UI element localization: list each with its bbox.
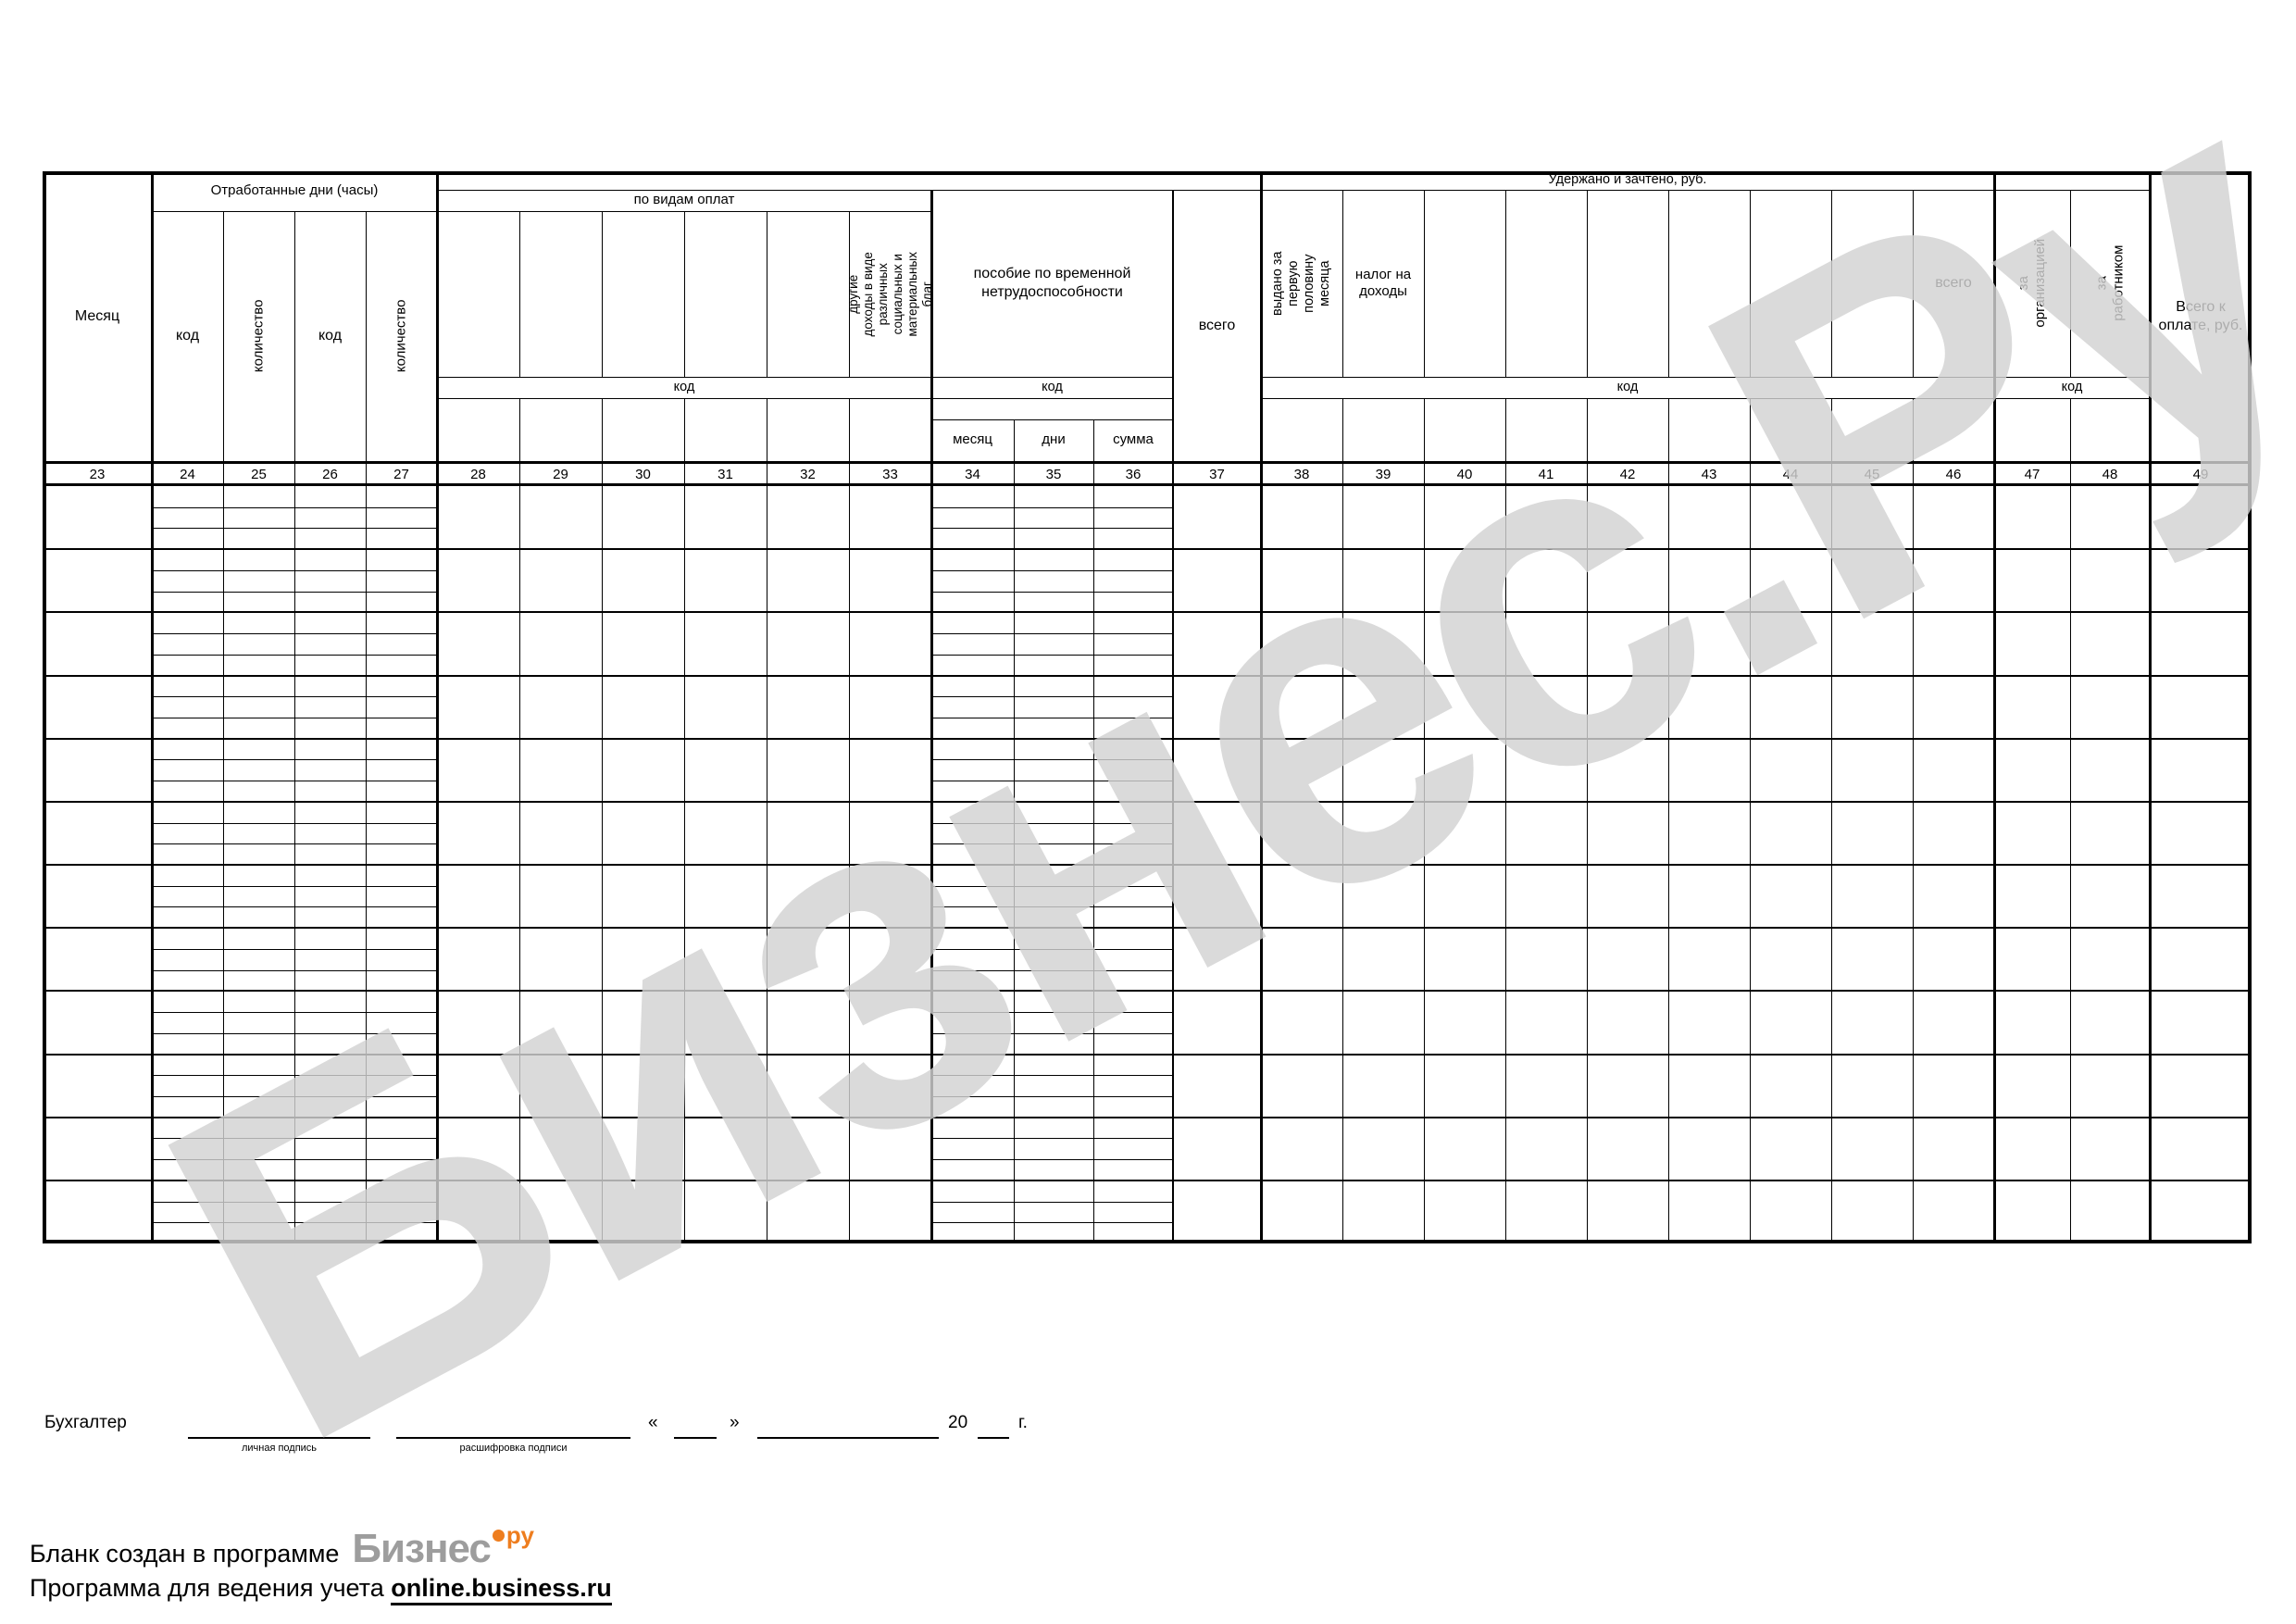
- grid-line: [43, 171, 2252, 175]
- grid-line: [519, 211, 520, 377]
- personal-signature-caption: личная подпись: [188, 1443, 370, 1454]
- grid-line: [152, 781, 437, 781]
- grid-line: [1093, 419, 1094, 1243]
- grid-line: [684, 211, 685, 377]
- header-payment-blank: [684, 211, 767, 377]
- header-sick-days: дни: [1014, 419, 1093, 461]
- grid-line: [152, 718, 437, 718]
- grid-line: [152, 970, 437, 971]
- header-withheld-blank: [1831, 190, 1913, 377]
- grid-line: [437, 377, 1173, 378]
- grid-line: [1831, 190, 1832, 377]
- grid-line: [152, 759, 437, 760]
- grid-line: [931, 655, 1173, 656]
- grid-line: [152, 886, 437, 887]
- grid-line: [43, 801, 2252, 803]
- grid-line: [43, 675, 2252, 677]
- footer-created-row: Бланк создан в программе Бизнес ру: [30, 1530, 534, 1568]
- header-code-withheld: код: [1261, 377, 1994, 398]
- grid-line: [931, 781, 1173, 781]
- grid-line: [1587, 190, 1588, 377]
- grid-line: [152, 823, 437, 824]
- grid-line: [43, 738, 2252, 740]
- grid-line: [1261, 398, 2150, 399]
- header-sick-benefit: пособие по временной нетрудоспособности: [931, 190, 1173, 377]
- grid-line: [931, 419, 1173, 420]
- grid-line: [1260, 171, 1263, 1243]
- grid-line: [223, 211, 224, 1243]
- logo-ru-text: ру: [506, 1521, 534, 1550]
- grid-line: [152, 696, 437, 697]
- header-by-payment-types: по видам оплат: [437, 190, 931, 211]
- grid-line: [152, 528, 437, 529]
- header-sick-blank: [931, 398, 1173, 419]
- grid-line: [931, 696, 1173, 697]
- grid-line: [43, 1180, 2252, 1181]
- header-code-hours: код: [294, 211, 366, 461]
- year-suffix: г.: [1018, 1413, 1028, 1433]
- grid-line: [931, 886, 1173, 887]
- grid-line: [849, 211, 850, 377]
- header-total-to-pay: Всего к оплате, руб.: [2150, 171, 2252, 461]
- grid-line: [931, 823, 1173, 824]
- grid-line: [152, 507, 437, 508]
- grid-line: [931, 1012, 1173, 1013]
- grid-line: [43, 864, 2252, 866]
- footer-created-text: Бланк создан в программе: [30, 1541, 339, 1568]
- grid-line: [152, 211, 931, 212]
- grid-line: [931, 1138, 1173, 1139]
- header-debt-emp: за работником: [2070, 190, 2150, 377]
- footer-program-row: Программа для ведения учета online.busin…: [30, 1574, 612, 1603]
- grid-line: [931, 970, 1173, 971]
- header-withheld-blank: [1424, 190, 1505, 377]
- grid-line: [1342, 190, 1343, 377]
- header-debt-org: за организацией: [1994, 190, 2070, 377]
- header-withheld-blank: [1668, 190, 1750, 377]
- grid-line: [43, 1054, 2252, 1056]
- header-income-tax: налог на доходы: [1342, 190, 1424, 377]
- year-prefix: 20: [948, 1413, 967, 1433]
- signature-name-line[interactable]: [396, 1437, 630, 1439]
- header-code-days: код: [152, 211, 223, 461]
- grid-line: [152, 1012, 437, 1013]
- grid-line: [931, 570, 1173, 571]
- payroll-table: МесяцОтработанные дни (часы)кодколичеств…: [43, 171, 2252, 1243]
- business-ru-link[interactable]: online.business.ru: [391, 1574, 612, 1605]
- grid-line: [931, 949, 1173, 950]
- grid-line: [1014, 419, 1015, 1243]
- grid-line: [152, 1033, 437, 1034]
- grid-line: [1750, 190, 1751, 377]
- grid-line: [931, 1222, 1173, 1223]
- grid-line: [2070, 190, 2071, 377]
- grid-line: [152, 1159, 437, 1160]
- grid-line: [43, 611, 2252, 613]
- grid-line: [43, 1240, 2252, 1243]
- header-code-payments: код: [437, 377, 931, 398]
- grid-line: [931, 507, 1173, 508]
- header-quantity-days: количество: [223, 211, 294, 461]
- grid-line: [931, 1159, 1173, 1160]
- grid-line: [602, 211, 603, 377]
- grid-line: [152, 1222, 437, 1223]
- grid-line: [152, 655, 437, 656]
- grid-line: [436, 171, 439, 1243]
- month-line[interactable]: [757, 1437, 939, 1439]
- grid-line: [43, 927, 2252, 929]
- grid-line: [152, 633, 437, 634]
- day-line[interactable]: [674, 1437, 717, 1439]
- grid-line: [931, 759, 1173, 760]
- grid-line: [43, 1117, 2252, 1118]
- quote-open: «: [648, 1413, 658, 1433]
- grid-line: [931, 633, 1173, 634]
- grid-line: [931, 1202, 1173, 1203]
- header-worked-days: Отработанные дни (часы): [152, 171, 437, 211]
- grid-line: [1668, 190, 1669, 377]
- header-payment-blank: [437, 211, 519, 377]
- grid-line: [1424, 190, 1425, 377]
- grid-line: [1913, 190, 1914, 377]
- grid-line: [931, 906, 1173, 907]
- grid-line: [152, 1096, 437, 1097]
- header-quantity-hours: количество: [366, 211, 437, 461]
- grid-line: [43, 461, 2252, 464]
- grid-line: [2248, 171, 2252, 1243]
- grid-line: [1505, 190, 1506, 377]
- grid-line: [1993, 171, 1996, 1243]
- quote-close: »: [730, 1413, 740, 1433]
- signature-name-caption: расшифровка подписи: [396, 1443, 630, 1454]
- header-withheld-blank: [1587, 190, 1668, 377]
- grid-line: [43, 483, 2252, 486]
- grid-line: [437, 190, 2150, 191]
- grid-line: [43, 171, 46, 1243]
- footer-program-text: Программа для ведения учета: [30, 1574, 384, 1602]
- grid-line: [43, 548, 2252, 550]
- header-withheld-total: всего: [1913, 190, 1994, 377]
- header-accrued-total: всего: [1173, 190, 1261, 461]
- grid-line: [152, 1075, 437, 1076]
- header-sick-sum: сумма: [1093, 419, 1173, 461]
- header-code-sick: код: [931, 377, 1173, 398]
- grid-line: [151, 171, 154, 1243]
- grid-line: [152, 906, 437, 907]
- grid-line: [931, 1096, 1173, 1097]
- grid-line: [931, 1033, 1173, 1034]
- grid-line: [931, 718, 1173, 718]
- header-other-income: другие доходы в виде различных социальны…: [849, 211, 931, 377]
- header-code-debt: код: [1994, 377, 2150, 398]
- personal-signature-line[interactable]: [188, 1437, 370, 1439]
- grid-line: [152, 949, 437, 950]
- grid-line: [43, 990, 2252, 992]
- form-page: МесяцОтработанные дни (часы)кодколичеств…: [0, 0, 2296, 1624]
- header-payment-blank: [767, 211, 849, 377]
- grid-line: [366, 211, 367, 1243]
- grid-line: [2149, 171, 2152, 1243]
- header-month: Месяц: [43, 171, 152, 461]
- header-sick-month: месяц: [931, 419, 1014, 461]
- year-line[interactable]: [978, 1437, 1009, 1439]
- header-withheld-blank: [1750, 190, 1831, 377]
- grid-line: [152, 1202, 437, 1203]
- logo-superscript: ру: [493, 1521, 534, 1550]
- header-payment-blank: [602, 211, 684, 377]
- grid-line: [152, 843, 437, 844]
- grid-line: [931, 843, 1173, 844]
- grid-line: [767, 211, 767, 377]
- logo-dot-icon: [493, 1530, 505, 1542]
- grid-line: [931, 528, 1173, 529]
- grid-line: [437, 398, 1173, 399]
- business-ru-logo: Бизнес: [352, 1530, 490, 1568]
- grid-line: [152, 592, 437, 593]
- grid-line: [931, 1075, 1173, 1076]
- header-advance-first-half: выдано за первую половину месяца: [1261, 190, 1342, 377]
- grid-line: [152, 570, 437, 571]
- grid-line: [152, 1138, 437, 1139]
- grid-line: [931, 592, 1173, 593]
- header-withheld-blank: [1505, 190, 1587, 377]
- accountant-label: Бухгалтер: [44, 1413, 127, 1433]
- grid-line: [1261, 377, 2150, 378]
- header-payment-blank: [519, 211, 602, 377]
- grid-line: [294, 211, 295, 1243]
